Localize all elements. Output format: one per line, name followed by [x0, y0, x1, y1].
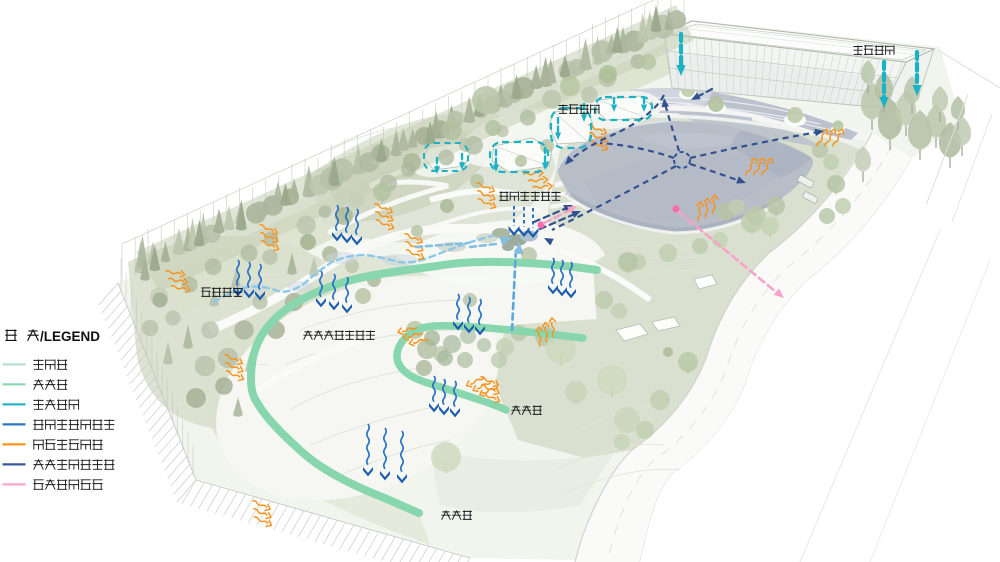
svg-text:/LEGEND: /LEGEND [40, 329, 100, 344]
